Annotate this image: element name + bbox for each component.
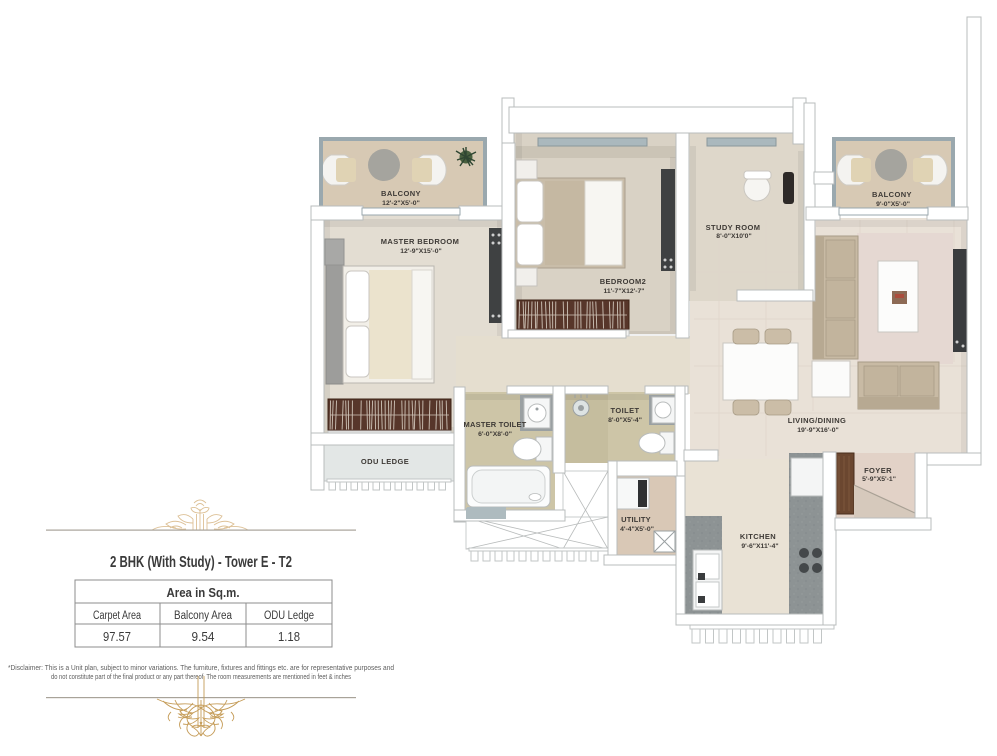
- svg-text:Carpet Area: Carpet Area: [93, 610, 141, 622]
- svg-text:4'-4"X5'-0": 4'-4"X5'-0": [620, 526, 654, 533]
- svg-text:MASTER TOILET: MASTER TOILET: [464, 420, 527, 429]
- svg-text:9.54: 9.54: [192, 630, 215, 644]
- svg-text:11'-7"X12'-7": 11'-7"X12'-7": [603, 288, 644, 295]
- svg-text:5'-9"X5'-1": 5'-9"X5'-1": [862, 476, 896, 483]
- svg-text:FOYER: FOYER: [864, 466, 892, 475]
- svg-text:ODU LEDGE: ODU LEDGE: [361, 457, 409, 466]
- svg-text:12'-9"X15'-0": 12'-9"X15'-0": [400, 248, 441, 255]
- svg-text:TOILET: TOILET: [611, 406, 640, 415]
- svg-text:6'-0"X8'-0": 6'-0"X8'-0": [478, 431, 512, 438]
- svg-text:8'-0"X5'-4": 8'-0"X5'-4": [608, 417, 642, 424]
- svg-text:MASTER BEDROOM: MASTER BEDROOM: [381, 237, 460, 246]
- svg-text:*Disclaimer: This is a Unit pl: *Disclaimer: This is a Unit plan, subjec…: [8, 665, 394, 672]
- svg-text:8'-0"X10'0": 8'-0"X10'0": [716, 233, 751, 240]
- svg-text:Area in Sq.m.: Area in Sq.m.: [167, 585, 240, 600]
- svg-text:9'-0"X5'-0": 9'-0"X5'-0": [876, 201, 910, 208]
- svg-text:do not constitute part of the: do not constitute part of the final prod…: [51, 674, 351, 681]
- svg-text:19'-9"X16'-0": 19'-9"X16'-0": [797, 427, 838, 434]
- svg-text:UTILITY: UTILITY: [621, 515, 651, 524]
- svg-text:1.18: 1.18: [278, 630, 300, 644]
- svg-text:9'-6"X11'-4": 9'-6"X11'-4": [741, 543, 778, 550]
- svg-text:KITCHEN: KITCHEN: [740, 532, 776, 541]
- svg-text:97.57: 97.57: [103, 630, 131, 644]
- svg-text:BEDROOM2: BEDROOM2: [600, 277, 647, 286]
- svg-text:12'-2"X5'-0": 12'-2"X5'-0": [382, 200, 420, 207]
- svg-text:Balcony Area: Balcony Area: [174, 610, 233, 622]
- svg-text:2 BHK (With Study) - Tower E -: 2 BHK (With Study) - Tower E - T2: [110, 554, 292, 571]
- svg-text:BALCONY: BALCONY: [872, 190, 912, 199]
- svg-text:STUDY ROOM: STUDY ROOM: [706, 223, 761, 232]
- svg-text:LIVING/DINING: LIVING/DINING: [788, 416, 847, 425]
- svg-text:ODU Ledge: ODU Ledge: [264, 610, 314, 622]
- svg-text:BALCONY: BALCONY: [381, 189, 421, 198]
